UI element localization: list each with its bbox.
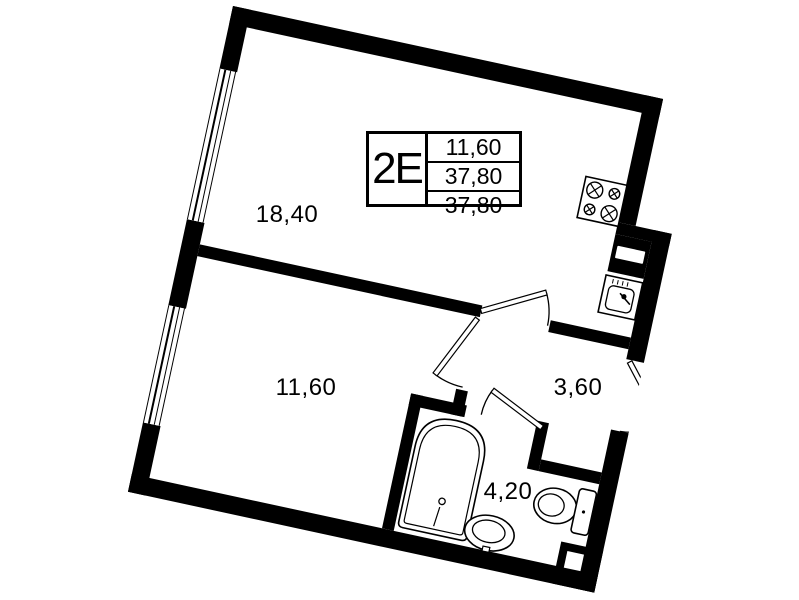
living-room-door-swing bbox=[479, 277, 554, 327]
entrance-door-swing bbox=[613, 360, 676, 440]
stove-icon bbox=[577, 176, 627, 226]
fixtures-layer bbox=[128, 6, 699, 593]
unit-area-table: 11,60 37,80 37,80 bbox=[428, 134, 519, 204]
unit-type-label: 2E bbox=[369, 134, 428, 204]
kitchen-sink-icon bbox=[598, 275, 643, 320]
unit-overall-area: 37,80 bbox=[428, 192, 519, 219]
floor-plan-canvas: 18,40 11,60 3,60 4,20 2E 11,60 37,80 37,… bbox=[0, 0, 799, 600]
unit-info-card: 2E 11,60 37,80 37,80 bbox=[366, 131, 522, 207]
living-kitchen-area-label: 18,40 bbox=[256, 201, 319, 229]
hallway-area-label: 3,60 bbox=[554, 374, 603, 402]
bathroom-area-label: 4,20 bbox=[484, 478, 533, 506]
bedroom-area-label: 11,60 bbox=[276, 374, 337, 402]
bathroom-door-swing bbox=[481, 387, 549, 430]
bedroom-door-swing bbox=[431, 311, 479, 388]
floor-plan bbox=[128, 6, 699, 593]
unit-total-area: 37,80 bbox=[428, 163, 519, 192]
unit-living-area: 11,60 bbox=[428, 134, 519, 163]
vent-shaft-icon bbox=[607, 234, 651, 279]
toilet-icon bbox=[529, 479, 597, 536]
